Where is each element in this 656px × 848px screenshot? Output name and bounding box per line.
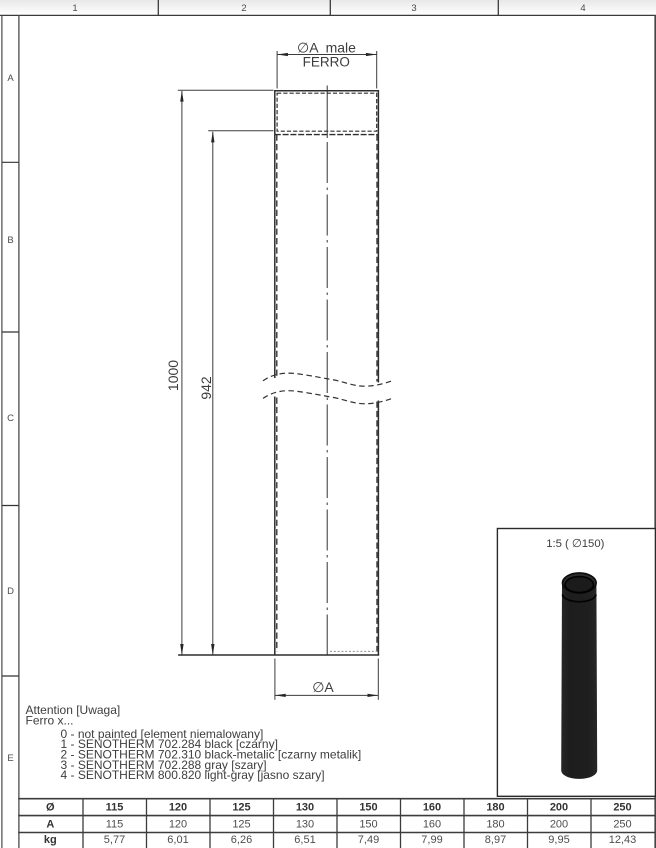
svg-text:942: 942 [198, 376, 214, 400]
svg-text:130: 130 [296, 802, 314, 814]
svg-text:∅A male: ∅A male [297, 40, 356, 56]
svg-text:kg: kg [44, 834, 57, 846]
svg-text:9,95: 9,95 [548, 834, 569, 846]
svg-text:125: 125 [232, 802, 250, 814]
svg-text:250: 250 [613, 802, 631, 814]
svg-text:Ø: Ø [46, 802, 55, 814]
svg-text:200: 200 [550, 802, 568, 814]
svg-text:8,97: 8,97 [485, 834, 506, 846]
svg-text:A: A [46, 819, 54, 831]
svg-text:12,43: 12,43 [609, 834, 637, 846]
svg-text:120: 120 [169, 802, 187, 814]
svg-text:150: 150 [359, 819, 377, 831]
svg-text:4: 4 [580, 3, 585, 14]
svg-text:B: B [7, 235, 13, 246]
svg-text:160: 160 [423, 819, 441, 831]
svg-text:1: 1 [72, 3, 77, 14]
svg-text:1:5 ( ∅150): 1:5 ( ∅150) [546, 538, 604, 550]
svg-text:160: 160 [423, 802, 441, 814]
svg-text:7,49: 7,49 [358, 834, 379, 846]
svg-text:4 - SENOTHERM 800.820 light-gr: 4 - SENOTHERM 800.820 light-gray [jasno … [61, 768, 325, 782]
svg-text:7,99: 7,99 [421, 834, 442, 846]
svg-text:115: 115 [106, 802, 124, 814]
svg-text:180: 180 [486, 819, 504, 831]
svg-text:2: 2 [241, 3, 246, 14]
svg-text:A: A [7, 73, 14, 84]
svg-text:120: 120 [169, 819, 187, 831]
svg-text:125: 125 [232, 819, 250, 831]
svg-text:Ferro x...: Ferro x... [26, 714, 74, 728]
svg-text:200: 200 [550, 819, 568, 831]
svg-text:∅A: ∅A [312, 679, 334, 695]
svg-text:FERRO: FERRO [303, 55, 350, 70]
svg-text:D: D [7, 586, 14, 597]
svg-text:1000: 1000 [165, 360, 181, 391]
svg-text:5,77: 5,77 [104, 834, 125, 846]
svg-text:3: 3 [411, 3, 416, 14]
svg-text:130: 130 [296, 819, 314, 831]
svg-text:180: 180 [486, 802, 504, 814]
svg-text:115: 115 [106, 819, 124, 831]
svg-text:6,26: 6,26 [231, 834, 252, 846]
svg-text:C: C [7, 413, 14, 424]
svg-text:6,51: 6,51 [294, 834, 315, 846]
svg-text:E: E [7, 753, 13, 764]
svg-text:250: 250 [613, 819, 631, 831]
svg-text:6,01: 6,01 [167, 834, 188, 846]
svg-text:150: 150 [359, 802, 377, 814]
